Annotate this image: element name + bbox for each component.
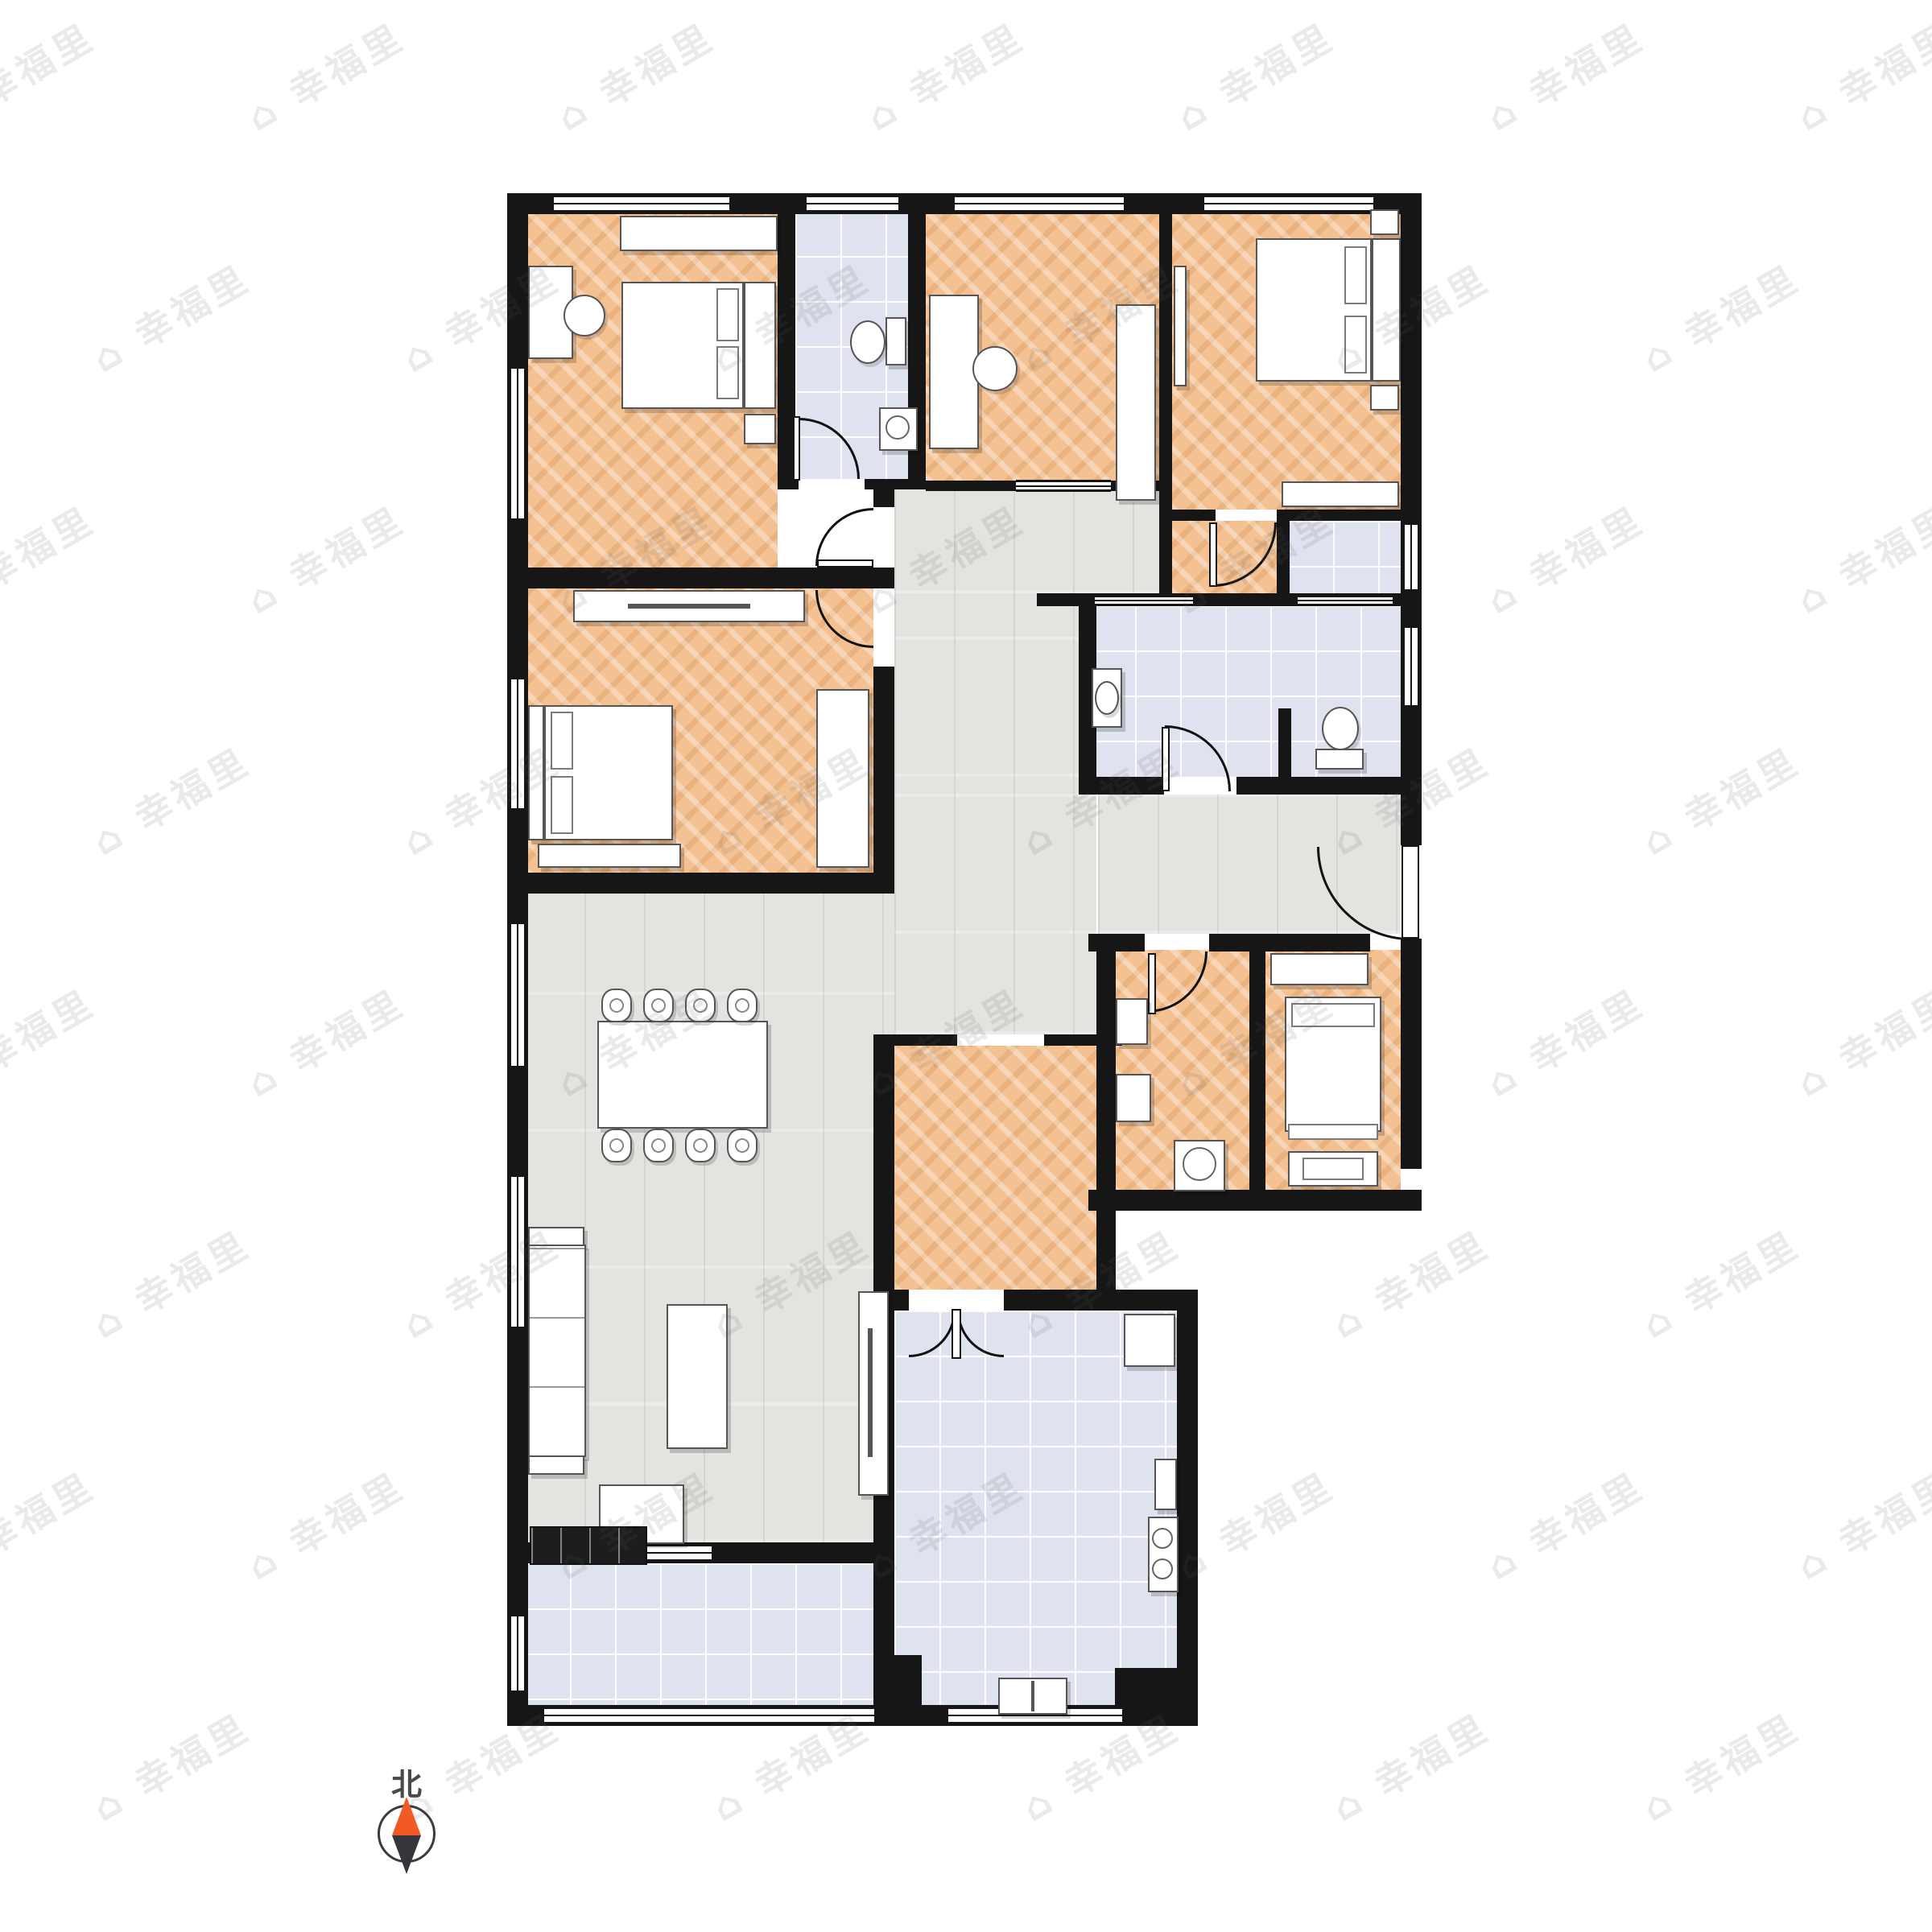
dining-table	[597, 1021, 768, 1129]
wardrobe-bedroom-4	[816, 689, 869, 868]
wall-storage-left	[1277, 510, 1290, 606]
sliding-door-storage	[1298, 595, 1393, 606]
bed-3-headboard	[1372, 238, 1401, 382]
dining-chair-5	[601, 1129, 632, 1162]
kitchen-fridge	[1154, 1459, 1177, 1510]
door-slab-bathroom-2	[1162, 727, 1170, 791]
stove-burner-a	[1152, 1528, 1173, 1549]
toilet-1-bowl	[850, 320, 885, 364]
tv-cabinet-living	[858, 1291, 889, 1496]
wardrobe-bedroom-5	[1270, 953, 1368, 985]
wall-corridor-stub	[873, 489, 894, 507]
hallway-floor-c	[894, 777, 1096, 934]
washing-machine-drum	[1183, 1147, 1216, 1181]
mirror-bedroom-1	[563, 295, 605, 336]
tv-bedroom-4	[628, 604, 750, 609]
bed-1-pillow-b	[716, 346, 739, 399]
wardrobe-bedroom-2	[1116, 304, 1156, 501]
sofa-armrest-a	[528, 1227, 584, 1246]
window-bathroom-1-top	[807, 195, 898, 213]
compass-needle-south-icon	[392, 1835, 421, 1874]
wall-utility-bed5-divider	[1249, 950, 1265, 1190]
balcony-floor	[525, 1563, 892, 1705]
wardrobe-bedroom-1	[620, 216, 778, 251]
bed-4-pillow-b	[551, 776, 573, 834]
dining-chair-1	[601, 989, 632, 1022]
kitchen-sink-divider	[1031, 1681, 1034, 1711]
door-slab-utility	[1148, 953, 1156, 1014]
toilet-2-bowl	[1322, 707, 1359, 750]
pantry-floor	[894, 1046, 1101, 1290]
wall-pantry-top-a	[873, 1034, 957, 1046]
window-living-left-a	[509, 924, 526, 1066]
window-bedroom-4-left	[509, 679, 526, 808]
wall-kitchen-right	[1177, 1290, 1198, 1679]
hallway-floor-d	[894, 934, 1096, 1034]
stove-burner-b	[1152, 1558, 1173, 1579]
toilet-1-tank	[885, 317, 906, 365]
bed-5-foot	[1288, 1124, 1378, 1140]
hallway-floor-b	[894, 593, 1079, 777]
door-slab-kitchen	[952, 1309, 961, 1359]
wall-rightwing-bottom	[1088, 1190, 1422, 1211]
mirror-bedroom-2	[972, 346, 1018, 391]
armchair-utility-b	[1116, 1074, 1151, 1122]
storage-room-floor	[1288, 521, 1401, 593]
dining-chair-3	[685, 989, 716, 1022]
wall-bed3-bottom-a	[1170, 510, 1216, 521]
window-bedroom-1-left	[509, 369, 526, 518]
hallway-floor-a	[894, 489, 1159, 593]
nightstand-bedroom-3-a	[1370, 209, 1399, 235]
wall-bath2-bottom-b	[1236, 777, 1422, 795]
sofa-armrest-b	[528, 1455, 584, 1475]
kitchen-counter	[1124, 1314, 1175, 1367]
bench-bedroom-4	[538, 844, 681, 868]
window-balcony-bottom	[544, 1707, 874, 1724]
nightstand-bedroom-3-b	[1370, 385, 1399, 411]
desk-bedroom-2	[929, 295, 979, 449]
bed-5-pillow	[1291, 1003, 1375, 1027]
door-slab-entry	[1402, 845, 1419, 939]
wall-bed4-right	[873, 667, 894, 873]
dining-chair-8	[727, 1129, 758, 1162]
basin-bathroom-2	[1095, 681, 1119, 715]
tv-panel-bedroom-3	[1174, 266, 1187, 386]
plan-canvas	[0, 0, 1932, 1932]
door-slab-bedroom-3	[1209, 522, 1217, 587]
nightstand-bedroom-1	[744, 414, 776, 444]
sliding-door-bedroom-2	[1016, 480, 1111, 492]
wall-utility-left	[1096, 934, 1116, 1291]
wall-bed1-bed4-divider	[507, 568, 894, 588]
wall-toilet-stub	[1278, 708, 1291, 777]
wall-pantry-top-b	[1044, 1034, 1122, 1046]
door-slab-bathroom-1	[793, 416, 800, 481]
dining-chair-4	[727, 989, 758, 1022]
bed-1-headboard	[744, 282, 776, 409]
shoe-cabinet	[530, 1526, 647, 1565]
window-bedroom-3-top	[1204, 195, 1373, 213]
bed-4-pillow-a	[551, 712, 573, 770]
floor-plan-page: ⌂ 幸福里⌂ 幸福里⌂ 幸福里⌂ 幸福里⌂ 幸福里⌂ 幸福里⌂ 幸福里⌂ 幸福里…	[0, 0, 1932, 1932]
window-bathroom-2-right	[1402, 628, 1420, 705]
wall-bed4-bottom	[507, 873, 894, 894]
compass-needle-north-icon	[392, 1797, 421, 1835]
wall-bed2-bed3-divider	[1159, 193, 1172, 606]
window-bedroom-1-top	[554, 195, 729, 213]
window-storage-right	[1402, 525, 1420, 589]
basin-1-bowl	[885, 415, 910, 440]
wall-bath1-bottom-b	[865, 479, 926, 489]
sofa	[528, 1245, 586, 1457]
dresser-bedroom-5-screen	[1302, 1158, 1364, 1180]
bed-3-pillow-b	[1344, 316, 1367, 374]
dining-chair-6	[643, 1129, 674, 1162]
toilet-2-tank	[1315, 749, 1364, 770]
wall-rightwing-top-b	[1209, 934, 1370, 952]
dining-chair-2	[643, 989, 674, 1022]
kitchen-floor	[894, 1311, 1177, 1705]
wall-right-lower	[1401, 939, 1422, 1169]
sliding-door-bathroom-2	[1095, 595, 1193, 606]
window-balcony-left	[509, 1616, 526, 1690]
bed-4-headboard	[528, 705, 544, 840]
door-arc-bedroom-1	[815, 508, 873, 566]
tv-living	[868, 1328, 873, 1457]
wall-kitchen-top-b	[1004, 1290, 1198, 1311]
armchair-utility-a	[1116, 998, 1148, 1045]
bench-bedroom-3	[1282, 481, 1399, 507]
bed-1-pillow-a	[716, 288, 739, 341]
dining-chair-7	[685, 1129, 716, 1162]
window-bedroom-2-top	[955, 195, 1124, 213]
coffee-table	[667, 1304, 728, 1449]
window-living-left-b	[509, 1177, 526, 1327]
door-slab-bedroom-1	[817, 559, 873, 568]
wall-bed3-bottom-b	[1278, 510, 1422, 521]
bed-3-pillow-a	[1344, 246, 1367, 304]
